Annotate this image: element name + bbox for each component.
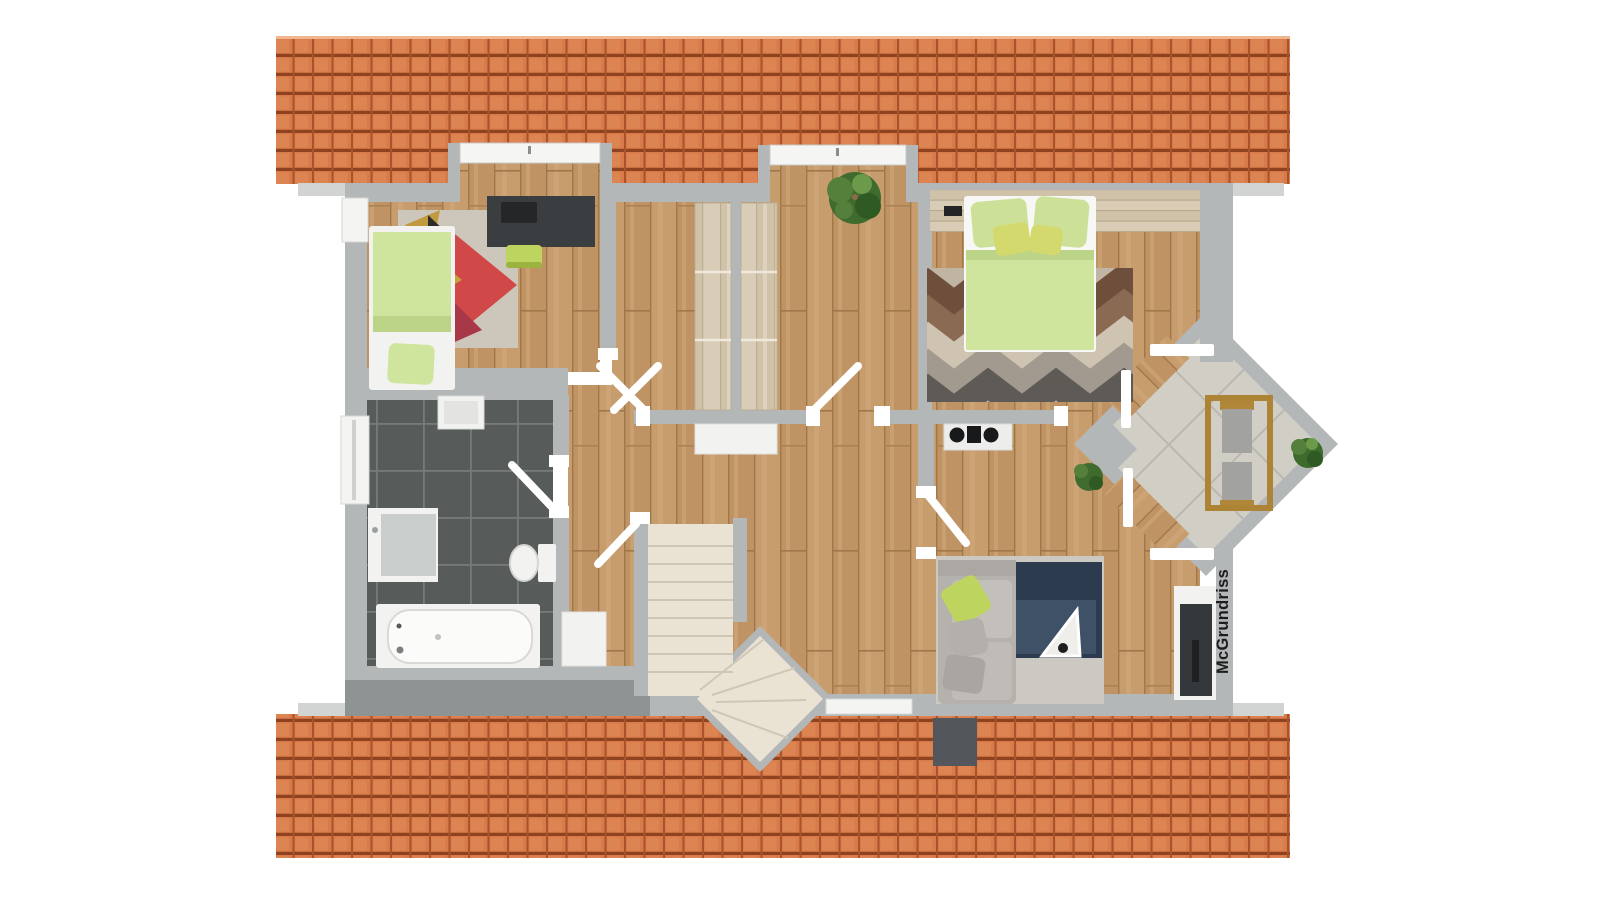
low-cabinet [695,424,777,454]
cooktop-burner-icon [950,428,965,443]
tub-faucet-icon [397,624,402,629]
faucet-icon [372,527,378,533]
toilet [510,544,556,582]
dormer2-wall-left [758,145,770,202]
kitchenette [944,424,1012,450]
door-leaf-terrace-south [1150,548,1214,560]
cooktop-burner-icon [984,428,999,443]
wall-kids-east [600,202,616,356]
tv-sideboard [1174,586,1216,700]
tub-drain-icon [435,634,441,640]
stair-flight [648,524,733,696]
dormer2-wall-right [906,145,918,202]
desk-chair-back [506,262,542,268]
terrace-chair-top [1222,409,1252,453]
watermark-text: McGrundriss [1214,569,1232,674]
wall-right-bedroom [1200,202,1233,362]
cooktop-module-icon [967,426,981,443]
single-bed [369,226,455,390]
pillow [942,653,987,694]
phone-icon [944,206,962,216]
bottom-window-sill [826,699,912,714]
pillow-small [1028,224,1064,256]
sofa [938,560,1016,704]
wall-stair-east [733,518,747,622]
wall-kitchen [876,410,1060,424]
wall-stair-west [634,518,648,696]
wardrobe-left [695,203,731,410]
dormer1-wall-left [448,143,460,202]
chimney [933,718,977,766]
shower-unit [368,508,438,582]
pillow-small [992,221,1033,257]
double-bed [964,196,1096,352]
bathtub [376,604,540,668]
pillow [947,617,990,660]
kids-room-window [342,198,368,242]
sloped-ceiling-band [345,680,650,716]
wall-center-south [634,410,820,424]
door-leaf-terrace-north-2 [1121,370,1131,428]
wall-bathroom-east-upper [553,395,569,462]
hall-cabinet [562,612,606,666]
roof-top-ridge [276,36,1290,39]
terrace-chair-top-back [1220,400,1254,410]
wall-top-2 [600,183,770,202]
dormer1-wall-right [600,143,612,202]
door-leaf-terrace-north [1150,344,1214,356]
floor-plan-canvas: McGrundriss [0,0,1600,900]
wall-living-west [918,424,934,488]
floor-plan-page: McGrundriss [0,0,1600,900]
door-leaf-terrace-south-2 [1123,468,1133,527]
wardrobe-right [741,203,777,410]
wall-wardrobe-divider [731,202,741,424]
laptop-icon [501,202,537,223]
wall-bathroom-bottom [345,666,650,682]
terrace-chair-bottom [1222,462,1252,504]
